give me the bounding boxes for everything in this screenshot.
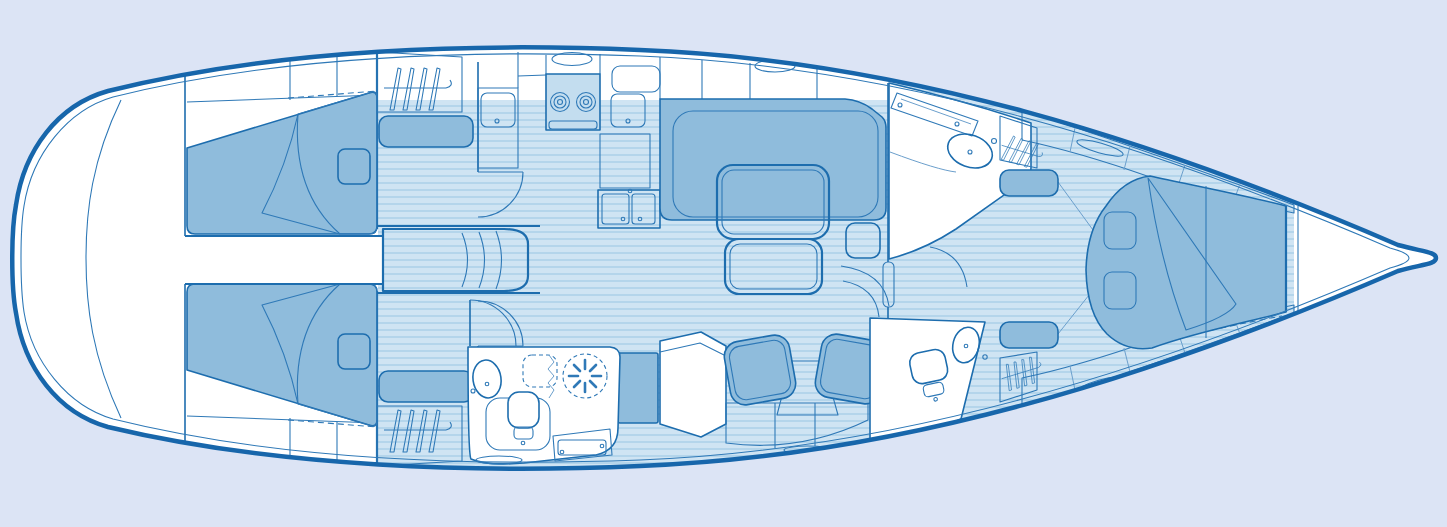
chart-desk	[660, 332, 726, 437]
floor-plan-canvas	[0, 0, 1447, 527]
locker-seat	[379, 371, 473, 402]
pillow	[338, 149, 370, 184]
bookshelf	[618, 353, 658, 423]
cabin-bench	[1000, 170, 1058, 196]
floor-plan-svg	[0, 0, 1447, 527]
galley-saloon-cabinet-band	[376, 28, 890, 100]
cabin-bench	[1000, 322, 1058, 348]
armchair-left	[722, 333, 798, 407]
u-settee	[660, 99, 886, 220]
locker-seat	[379, 116, 473, 147]
pillow	[338, 334, 370, 369]
